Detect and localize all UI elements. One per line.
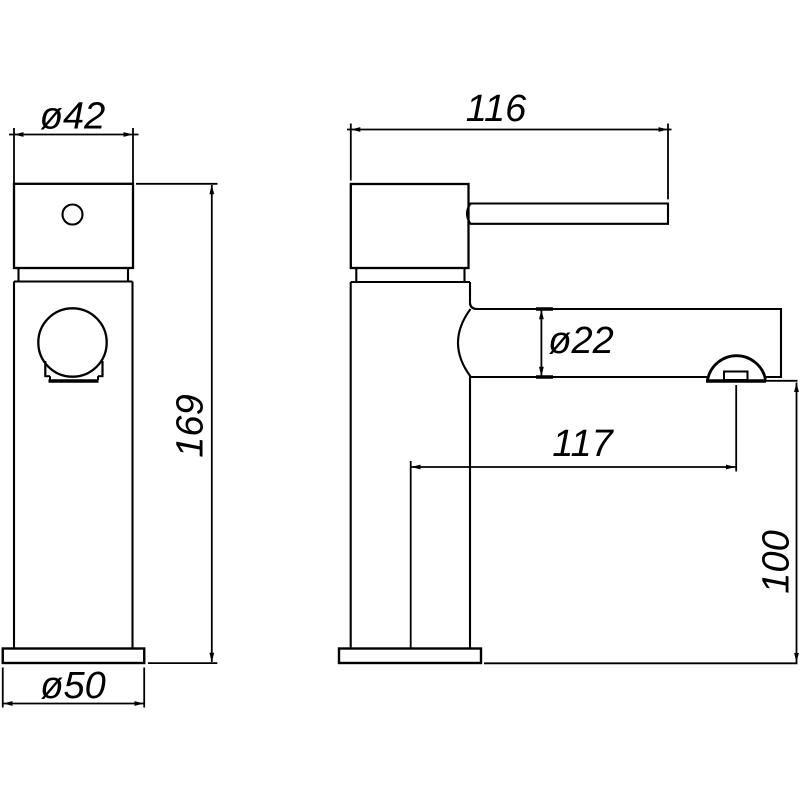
svg-text:ø22: ø22 (548, 320, 613, 362)
svg-text:100: 100 (756, 530, 798, 593)
svg-text:169: 169 (170, 394, 212, 457)
svg-text:ø42: ø42 (40, 95, 105, 137)
svg-text:ø50: ø50 (40, 665, 105, 707)
svg-text:116: 116 (466, 88, 527, 130)
svg-text:117: 117 (552, 423, 614, 465)
